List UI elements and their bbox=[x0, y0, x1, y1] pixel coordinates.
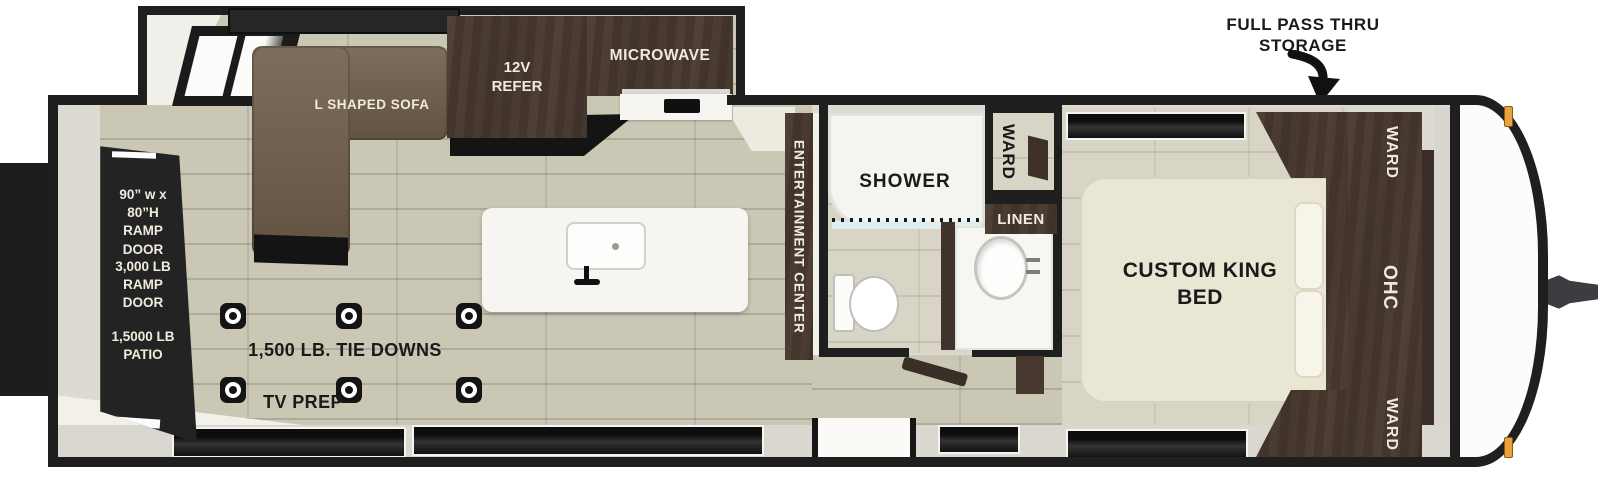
linen-cabinet: LINEN bbox=[985, 204, 1057, 234]
refer-label: 12V REFER bbox=[492, 58, 543, 97]
sofa-label: L SHAPED SOFA bbox=[292, 97, 452, 112]
faucet-icon bbox=[584, 266, 589, 280]
vanity-sink bbox=[974, 236, 1028, 300]
entry-door bbox=[812, 418, 916, 457]
window bbox=[1066, 429, 1248, 460]
window bbox=[172, 427, 406, 458]
ward-label: WARD bbox=[996, 115, 1020, 189]
pillow bbox=[1294, 290, 1324, 378]
passthru-floor bbox=[1434, 107, 1450, 457]
microwave-cabinet: MICROWAVE bbox=[587, 16, 733, 96]
linen-label: LINEN bbox=[997, 211, 1045, 228]
sofa-chaise bbox=[252, 46, 350, 258]
window bbox=[228, 8, 460, 34]
bed-label: CUSTOM KING BED bbox=[1100, 257, 1300, 312]
tv-prep-label: TV PREP bbox=[248, 392, 358, 413]
marker-light-icon bbox=[1504, 437, 1513, 458]
bath-wall bbox=[819, 348, 909, 357]
front-nose-cap bbox=[1452, 95, 1548, 467]
sink-drain bbox=[612, 243, 619, 250]
ward-bottom-label: WARD bbox=[1380, 388, 1402, 460]
shower-door-track bbox=[832, 218, 982, 222]
tie-down-icon bbox=[220, 303, 246, 329]
ward-top-label: WARD bbox=[1380, 116, 1402, 188]
tie-down-icon bbox=[336, 303, 362, 329]
sofa-base bbox=[254, 234, 348, 265]
bath-wall bbox=[985, 197, 1062, 204]
exterior-wall bbox=[727, 95, 1460, 105]
king-bed: CUSTOM KING BED bbox=[1080, 177, 1330, 403]
faucet-icon bbox=[1026, 258, 1040, 262]
bath-wall bbox=[819, 105, 828, 357]
window-pane bbox=[185, 36, 238, 96]
exterior-wall bbox=[48, 95, 58, 467]
tie-downs-label: 1,500 LB. TIE DOWNS bbox=[240, 340, 450, 361]
shower: SHOWER bbox=[828, 113, 985, 228]
patio-label: 1,5000 LB PATIO bbox=[102, 328, 184, 364]
window bbox=[412, 425, 764, 456]
ramp-weight-label: 3,000 LB RAMP DOOR bbox=[102, 258, 184, 313]
window bbox=[1066, 112, 1246, 140]
refrigerator: 12V REFER bbox=[447, 16, 587, 138]
ramp-size-label: 90” w x 80”H RAMP DOOR bbox=[102, 186, 184, 259]
kitchen-sink bbox=[566, 222, 646, 270]
bedroom-entry-cabinet bbox=[1016, 356, 1044, 394]
microwave-label: MICROWAVE bbox=[610, 47, 711, 65]
exterior-wall bbox=[1450, 95, 1460, 467]
floorplan-diagram: FULL PASS THRU STORAGE L SHAPED SOFA 12 bbox=[0, 0, 1600, 481]
ward-closet-shelf bbox=[1028, 136, 1048, 181]
tie-down-icon bbox=[220, 377, 246, 403]
exterior-wall bbox=[48, 95, 147, 105]
pillow bbox=[1294, 202, 1324, 290]
storage-callout-line1: FULL PASS THRU bbox=[1198, 14, 1408, 35]
tie-down-icon bbox=[456, 377, 482, 403]
tie-down-icon bbox=[456, 303, 482, 329]
ramp-handle bbox=[112, 151, 156, 159]
faucet-icon bbox=[1026, 270, 1040, 274]
toilet bbox=[849, 276, 899, 332]
ohc-label: OHC bbox=[1376, 248, 1402, 328]
window bbox=[938, 425, 1020, 454]
cooktop bbox=[664, 99, 700, 113]
faucet-icon bbox=[574, 279, 600, 285]
passthru-storage bbox=[1422, 150, 1434, 428]
vanity-side-cabinet bbox=[941, 222, 955, 350]
entertainment-center: ENTERTAINMENT CENTER bbox=[785, 113, 813, 360]
shower-label: SHOWER bbox=[840, 171, 970, 193]
patio-slab bbox=[0, 163, 48, 396]
marker-light-icon bbox=[1504, 106, 1513, 127]
exterior-wall bbox=[48, 457, 1460, 467]
